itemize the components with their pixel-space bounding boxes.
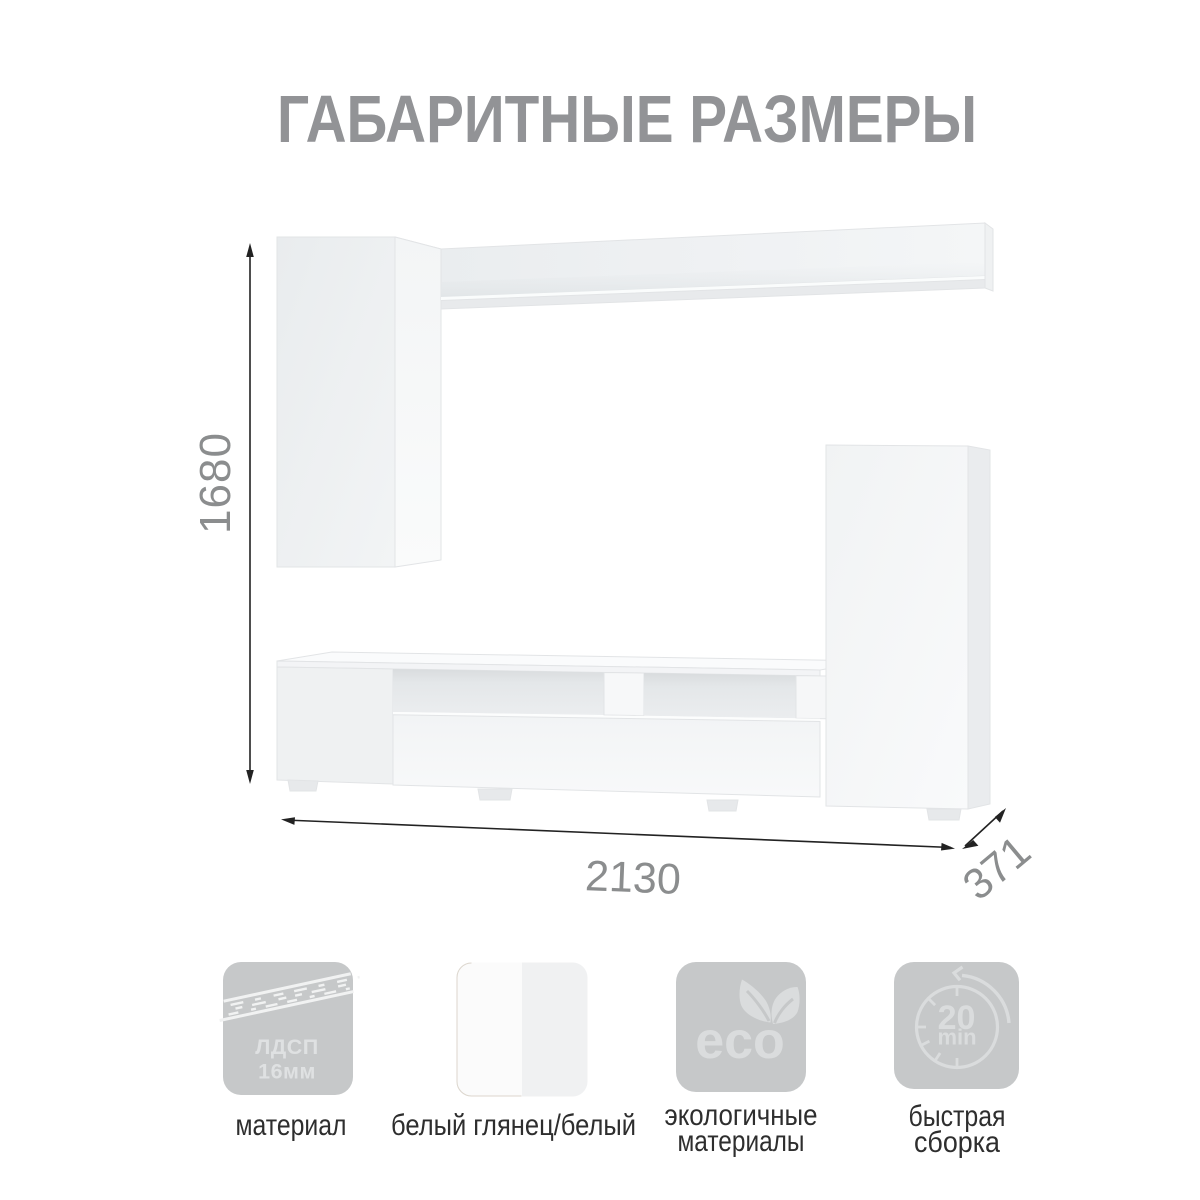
svg-text:16мм: 16мм	[258, 1060, 316, 1084]
svg-text:сборка: сборка	[914, 1126, 1000, 1159]
svg-text:материалы: материалы	[678, 1125, 805, 1158]
svg-text:eco: eco	[695, 1012, 785, 1070]
svg-text:ГАБАРИТНЫЕ РАЗМЕРЫ: ГАБАРИТНЫЕ РАЗМЕРЫ	[277, 82, 977, 157]
svg-text:2130: 2130	[584, 852, 682, 904]
svg-text:1680: 1680	[191, 432, 240, 534]
svg-text:белый глянец/белый: белый глянец/белый	[391, 1109, 636, 1142]
svg-text:min: min	[937, 1025, 976, 1050]
svg-text:ЛДСП: ЛДСП	[255, 1035, 318, 1059]
svg-text:материал: материал	[236, 1109, 347, 1142]
